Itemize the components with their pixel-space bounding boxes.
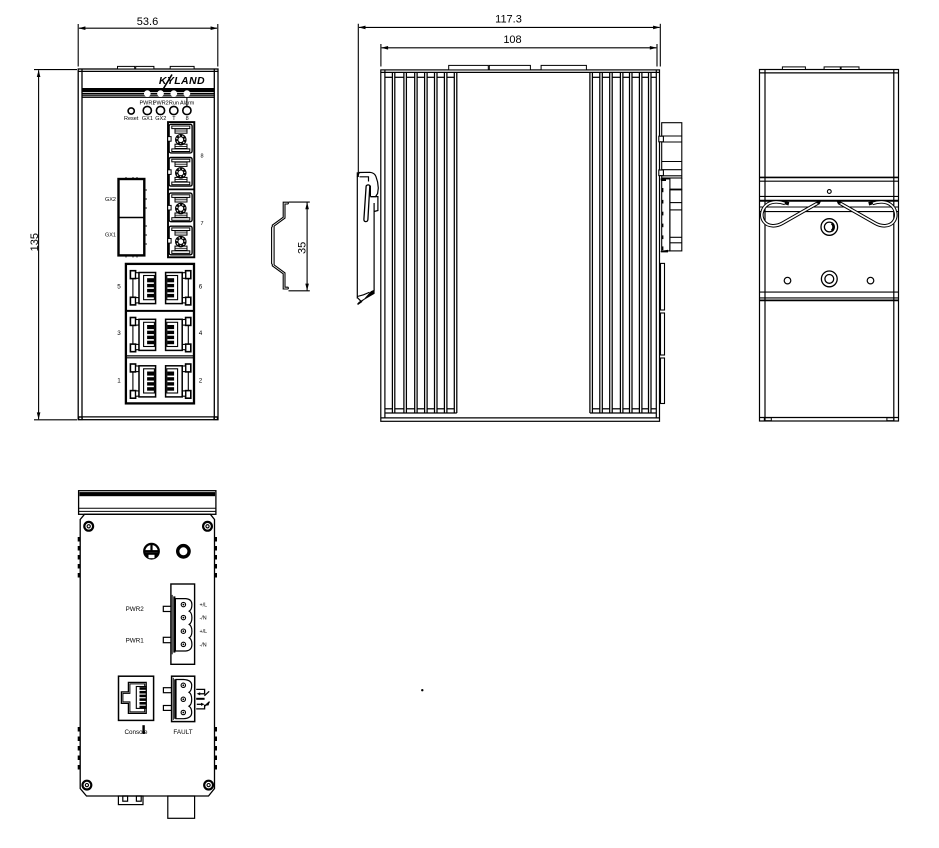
svg-text:-/N: -/N [200, 642, 207, 648]
svg-text:135: 135 [29, 233, 41, 251]
svg-text:6: 6 [199, 283, 203, 290]
svg-text:3: 3 [117, 330, 121, 337]
svg-text:5: 5 [117, 283, 121, 290]
svg-text:Reset: Reset [124, 116, 139, 122]
svg-text:1: 1 [117, 378, 121, 385]
svg-text:PWR1: PWR1 [126, 638, 145, 645]
svg-text:GX1: GX1 [142, 116, 153, 122]
svg-text:108: 108 [503, 34, 521, 46]
svg-text:8: 8 [201, 154, 204, 160]
svg-text:2: 2 [199, 378, 203, 385]
svg-text:PWR2: PWR2 [153, 100, 169, 106]
svg-text:PWR2: PWR2 [126, 606, 145, 613]
svg-text:GX2: GX2 [105, 197, 116, 203]
svg-text:53.6: 53.6 [137, 16, 158, 28]
svg-text:GX2: GX2 [155, 116, 166, 122]
svg-text:GX1: GX1 [105, 232, 116, 238]
svg-text:FAULT: FAULT [173, 729, 192, 736]
svg-text:+/L: +/L [200, 603, 208, 609]
svg-text:4: 4 [199, 330, 203, 337]
svg-text:+/L: +/L [200, 629, 208, 635]
svg-text:117.3: 117.3 [495, 14, 522, 26]
svg-text:7: 7 [201, 221, 204, 227]
svg-text:Alarm: Alarm [180, 100, 195, 106]
svg-text:35: 35 [296, 242, 308, 254]
svg-text:Run: Run [169, 100, 179, 106]
svg-text:8: 8 [186, 116, 189, 122]
svg-text:-/N: -/N [200, 616, 207, 622]
